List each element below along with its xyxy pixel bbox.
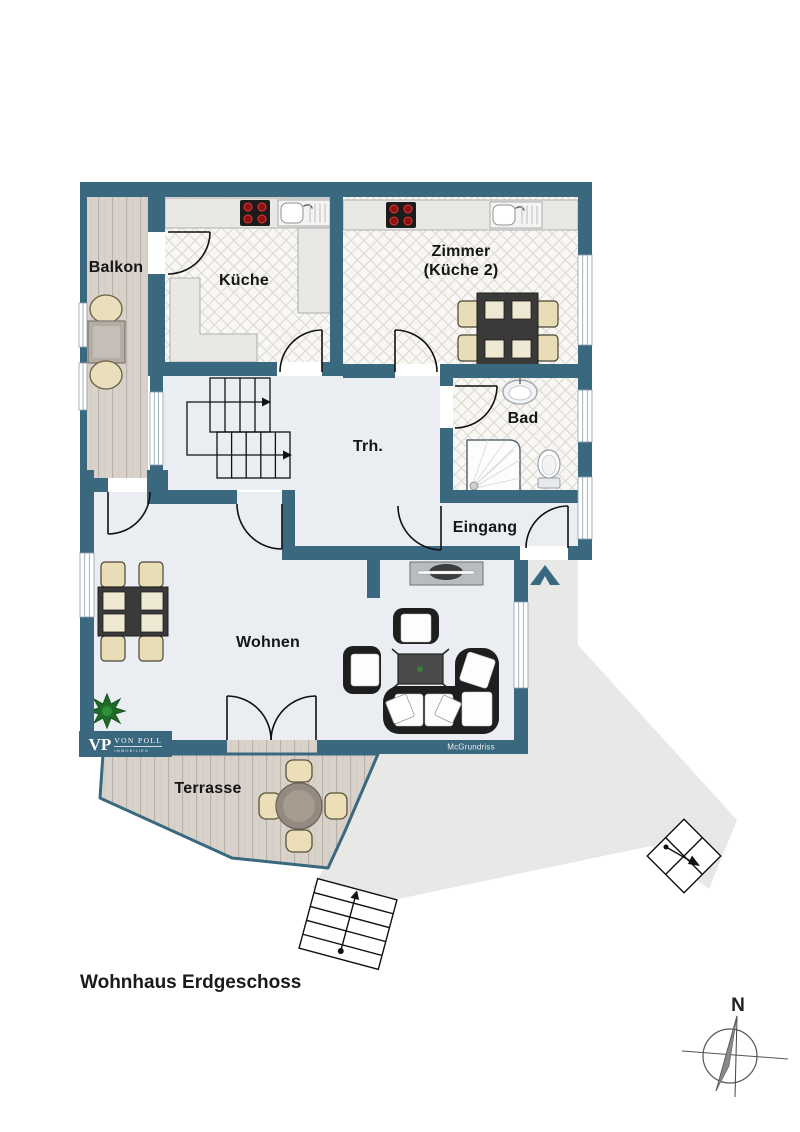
sink-icon-2 bbox=[490, 202, 542, 228]
compass-icon bbox=[682, 1016, 788, 1097]
window bbox=[80, 553, 94, 617]
room-label-kueche: Küche bbox=[219, 272, 269, 290]
stove-icon-2 bbox=[386, 202, 416, 228]
armchair-2 bbox=[343, 646, 381, 694]
compass-north-label: N bbox=[731, 995, 745, 1017]
room-label-bad: Bad bbox=[508, 410, 539, 428]
window bbox=[150, 392, 163, 465]
kitchen-counter-right bbox=[298, 228, 330, 313]
shower-icon bbox=[467, 440, 520, 493]
room-label-zimmer-line1: Zimmer bbox=[424, 242, 499, 261]
window bbox=[514, 602, 528, 688]
vonpoll-logo: VP VON POLL IMMOBILIEN bbox=[79, 731, 172, 757]
logo-initials: VP bbox=[89, 736, 112, 753]
room-label-zimmer: Zimmer (Küche 2) bbox=[424, 242, 499, 280]
room-label-terrasse: Terrasse bbox=[174, 780, 241, 798]
room-label-zimmer-line2: (Küche 2) bbox=[424, 261, 499, 280]
balcony-stool bbox=[90, 295, 122, 323]
coffee-table bbox=[392, 649, 449, 689]
armchair bbox=[393, 608, 439, 644]
room-label-wohnen: Wohnen bbox=[236, 634, 300, 652]
logo-subtitle: IMMOBILIEN bbox=[114, 748, 149, 753]
logo-name: VON POLL bbox=[114, 736, 162, 747]
toilet-icon bbox=[538, 450, 560, 488]
window bbox=[578, 255, 592, 345]
stove-icon bbox=[240, 200, 270, 226]
page-title: Wohnhaus Erdgeschoss bbox=[80, 972, 301, 994]
plant-icon bbox=[89, 694, 125, 728]
window bbox=[578, 390, 592, 442]
zimmer-counter bbox=[343, 200, 578, 230]
room-label-treppenhaus: Trh. bbox=[353, 438, 383, 456]
sideboard bbox=[410, 562, 483, 585]
balcony-furniture bbox=[88, 295, 125, 389]
balcony-stool-2 bbox=[90, 361, 122, 389]
sink-icon bbox=[278, 200, 330, 226]
watermark: McGrundriss bbox=[447, 743, 495, 752]
room-label-eingang: Eingang bbox=[453, 519, 518, 537]
stairwell-floor bbox=[163, 376, 440, 490]
room-label-balkon: Balkon bbox=[89, 259, 144, 277]
floor-plan-page: Balkon Küche Zimmer (Küche 2) Trh. Bad E… bbox=[0, 0, 800, 1132]
window bbox=[578, 477, 592, 539]
floor-plan-drawing bbox=[0, 0, 800, 1132]
